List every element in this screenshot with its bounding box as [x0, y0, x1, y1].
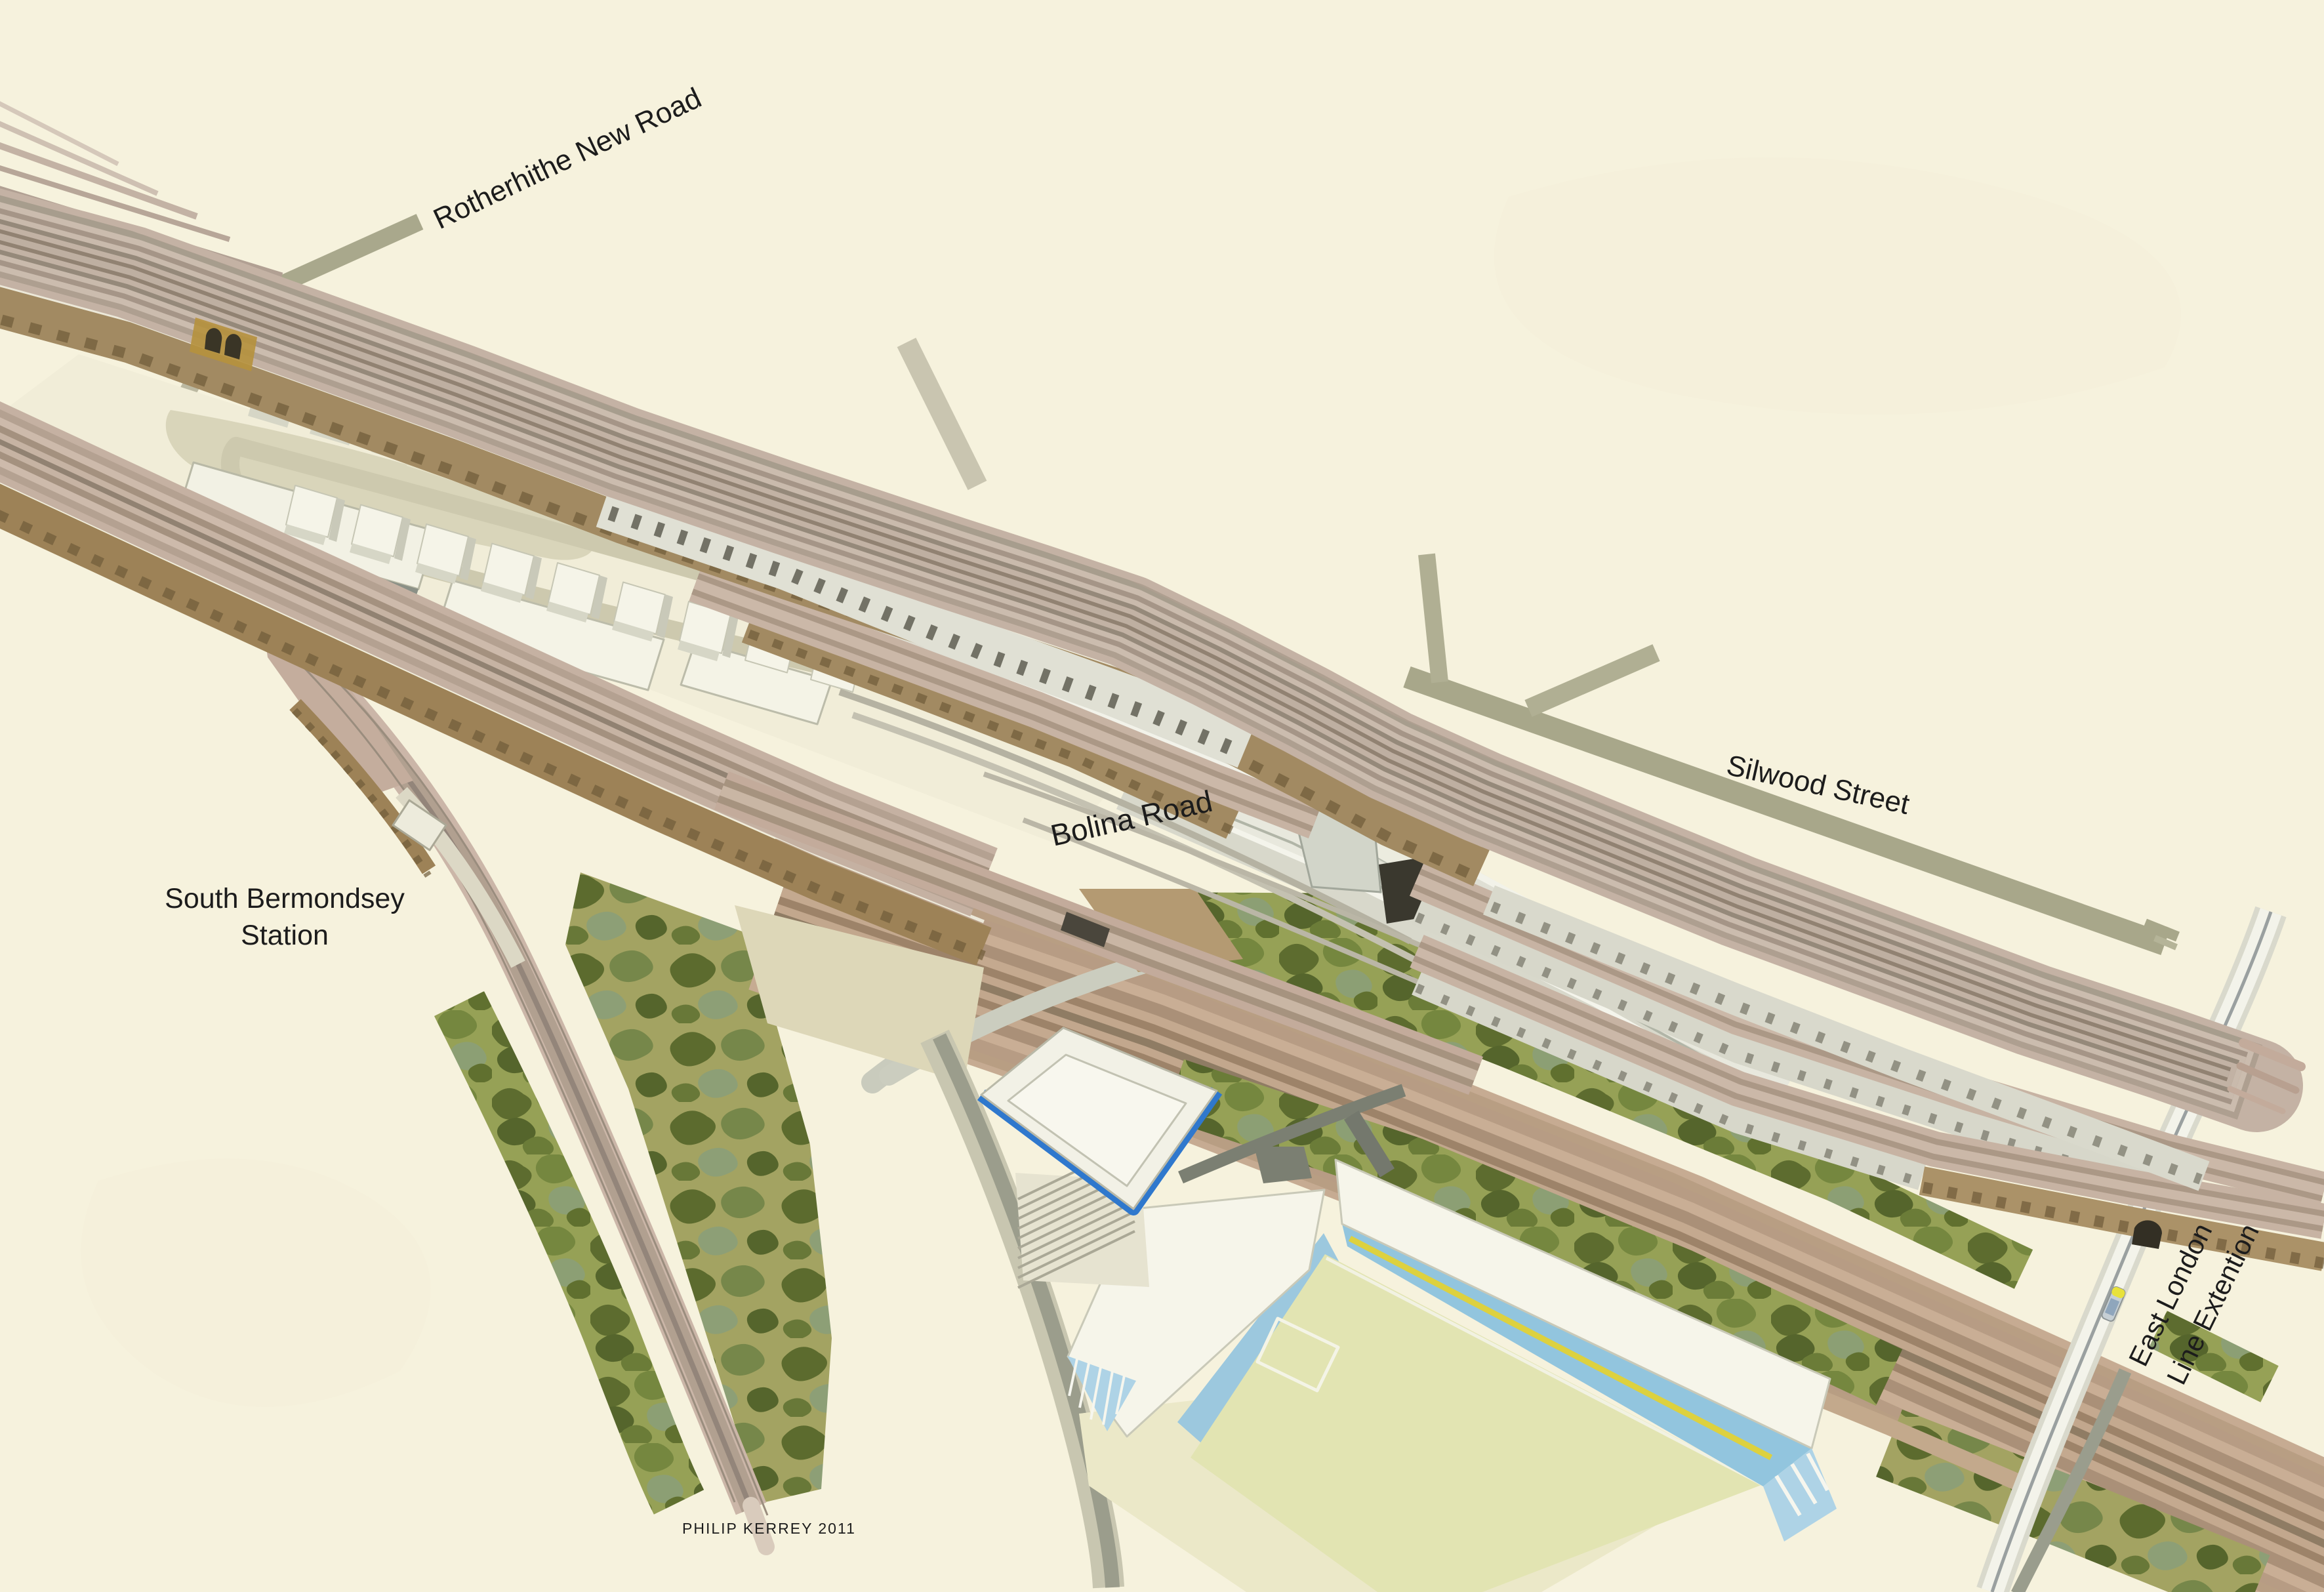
- svg-text:Station: Station: [241, 920, 329, 951]
- svg-text:South Bermondsey: South Bermondsey: [165, 883, 405, 914]
- svg-text:PHILIP KERREY 2011: PHILIP KERREY 2011: [682, 1520, 856, 1537]
